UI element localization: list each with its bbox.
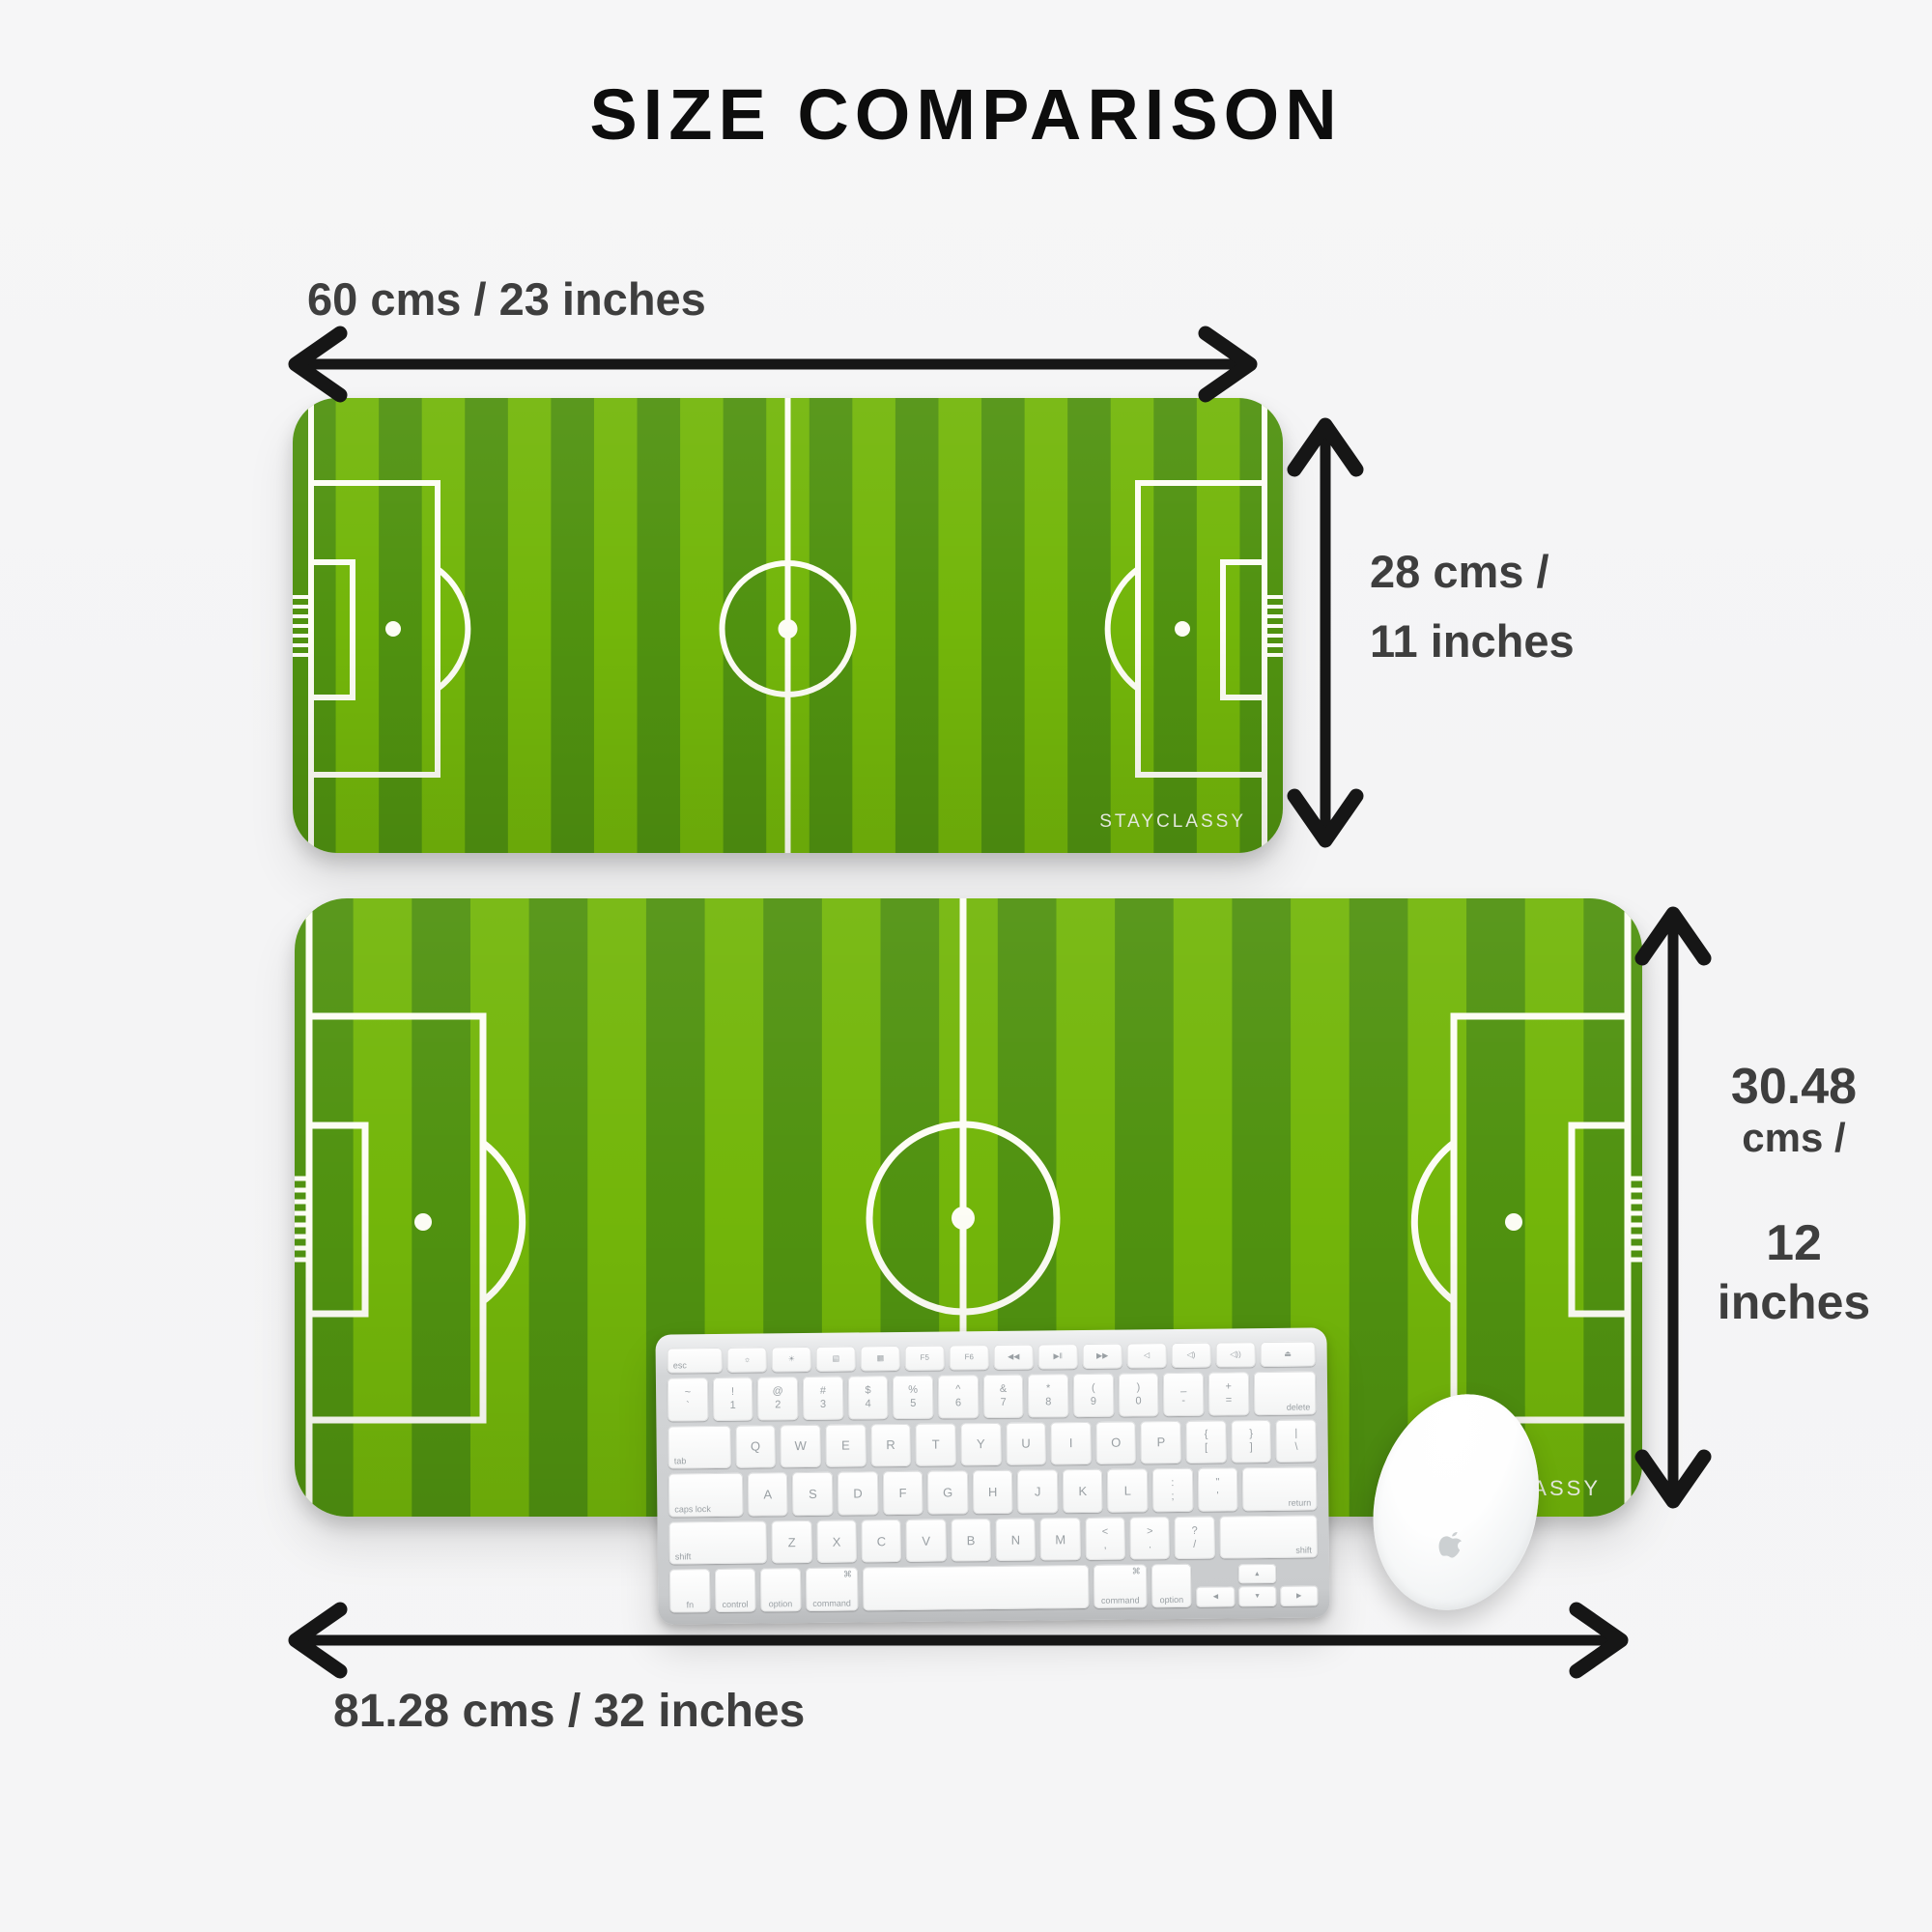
keyboard-key: F5 [905,1346,945,1371]
arrow-key: ◀ [1197,1586,1235,1607]
keyboard-key: P [1141,1421,1181,1464]
keyboard-key: U [1006,1422,1046,1465]
grass-stripe [379,398,422,853]
keyboard-key: (9 [1073,1374,1114,1417]
keyboard-key: )0 [1118,1373,1158,1416]
space-key [863,1565,1090,1610]
height-label-line: 28 cms / [1370,537,1575,607]
grass-stripe [336,398,380,853]
height-label-line: 11 inches [1370,607,1575,676]
small-mat-field: STAYCLASSY [293,398,1283,853]
penalty-spot-left [414,1213,432,1231]
grass-stripe [1067,398,1111,853]
keyboard-key: esc [668,1348,724,1374]
large-mat-width-label: 81.28 cms / 32 inches [333,1685,805,1738]
keyboard-key: N [995,1518,1036,1561]
keyboard-row: tabQWERTYUIOP{[}]|\ [668,1419,1316,1469]
keyboard-row: ~`!1@2#3$4%5^6&7*8(9)0_-+=delete [668,1371,1316,1421]
height-label-line: inches [1683,1275,1905,1329]
keyboard-key: ◁)) [1215,1342,1255,1367]
keyboard-key: delete [1253,1371,1316,1414]
keyboard-key: B [951,1519,991,1562]
keyboard-key: S [792,1472,833,1516]
small-mat-width-label: 60 cms / 23 inches [307,272,706,326]
grass-stripe [529,898,588,1517]
keyboard-key: J [1017,1469,1058,1513]
grass-stripe [680,398,724,853]
grass-stripe [852,398,895,853]
keyboard-keys: esc☼☀▤▦F5F6◀◀▶‖▶▶◁◁)◁))⏏~`!1@2#3$4%5^6&7… [668,1341,1319,1612]
grass-stripe [587,898,646,1517]
keyboard-key: ⌘command [806,1568,859,1611]
keyboard-row: caps lockASDFGHJKL:;"'return [668,1467,1317,1518]
keyboard-key: {[ [1186,1420,1227,1463]
keyboard-key: >. [1129,1517,1170,1560]
keyboard-key: ^6 [938,1375,979,1418]
small-mat-height-label: 28 cms / 11 inches [1370,537,1575,676]
grass-stripe [1111,398,1154,853]
size-comparison-graphic: SIZE COMPARISON 60 cms / 23 inches [0,0,1932,1932]
keyboard-key: :; [1152,1468,1193,1512]
keyboard-key: "' [1197,1468,1237,1512]
arrow-keys: ◀▲▼▶ [1196,1563,1318,1607]
keyboard-key: }] [1231,1420,1271,1463]
keyboard-key: tab [668,1425,730,1468]
keyboard-key: W [781,1424,821,1467]
grass-stripe [508,398,552,853]
keyboard-key: G [927,1470,968,1514]
keyboard-key: ▦ [861,1346,900,1371]
keyboard-key: control [715,1569,755,1612]
keyboard-key: F6 [950,1345,989,1370]
grass-stripe [938,398,981,853]
keyboard-key: @2 [757,1377,798,1420]
keyboard-key: F [883,1471,923,1515]
large-mat-height-label: 30.48 cms / 12 inches [1683,1059,1905,1329]
small-width-arrow [296,333,1250,395]
keyboard-key: ◁ [1126,1343,1166,1368]
keyboard-key: *8 [1028,1374,1068,1417]
goal-net-left [293,597,311,655]
keyboard-key: ▶▶ [1083,1344,1122,1369]
grass-stripe [1197,398,1240,853]
keyboard-key: !1 [713,1378,753,1421]
keyboard-key: return [1242,1467,1317,1511]
brand-text: STAYCLASSY [1099,811,1246,832]
grass-stripe [895,398,939,853]
keyboard-key: ▤ [816,1346,856,1371]
keyboard: esc☼☀▤▦F5F6◀◀▶‖▶▶◁◁)◁))⏏~`!1@2#3$4%5^6&7… [655,1327,1329,1624]
keyboard-key: Z [772,1520,812,1564]
keyboard-key: ☀ [772,1347,811,1372]
height-label-line: cms / [1683,1115,1905,1161]
keyboard-key: ⌘command [1094,1565,1147,1608]
keyboard-key: caps lock [668,1473,743,1517]
keyboard-key: ⏏ [1260,1341,1316,1367]
keyboard-key: ?/ [1175,1516,1215,1559]
penalty-spot-left [385,621,401,637]
keyboard-key: Y [960,1423,1001,1466]
keyboard-key: %5 [893,1376,933,1419]
goal-net-right [1264,597,1283,655]
keyboard-key: R [870,1423,911,1466]
grass-stripe [638,398,681,853]
grass-stripe [422,398,466,853]
keyboard-key: ▶‖ [1038,1344,1078,1369]
keyboard-key: K [1063,1469,1103,1513]
height-label-line: 12 [1683,1215,1905,1271]
keyboard-key: fn [669,1569,710,1612]
center-spot [952,1207,975,1230]
keyboard-key: _- [1163,1373,1204,1416]
grass-stripe [1525,898,1584,1517]
keyboard-key: ◀◀ [994,1345,1034,1370]
apple-logo-icon [1428,1520,1468,1563]
keyboard-key: M [1040,1518,1081,1561]
grass-stripe [1350,898,1408,1517]
grass-stripe [465,398,508,853]
keyboard-key: option [760,1568,801,1611]
keyboard-key: A [748,1472,788,1516]
keyboard-key: C [861,1520,901,1563]
page-title: SIZE COMPARISON [589,73,1342,156]
keyboard-key: $4 [848,1376,889,1419]
center-spot [779,619,798,639]
grass-stripe [810,398,853,853]
grass-stripe [1025,398,1068,853]
keyboard-key: ☼ [727,1347,767,1372]
keyboard-row: fncontroloption⌘command⌘commandoption◀▲▼… [669,1563,1318,1613]
keyboard-key: += [1208,1372,1249,1415]
keyboard-key: D [838,1471,878,1515]
keyboard-key: shift [668,1520,767,1565]
keyboard-key: V [906,1519,947,1562]
arrow-key: ▲ [1238,1564,1276,1584]
penalty-spot-right [1175,621,1190,637]
grass-stripe [1583,898,1642,1517]
keyboard-key: L [1107,1469,1148,1513]
grass-stripe [724,398,767,853]
arrow-key: ▼ [1238,1586,1276,1606]
keyboard-key: shift [1219,1515,1318,1559]
keyboard-key: ~` [668,1378,708,1421]
keyboard-key: |\ [1276,1419,1317,1463]
keyboard-key: &7 [982,1375,1023,1418]
grass-stripe [295,898,354,1517]
keyboard-row: esc☼☀▤▦F5F6◀◀▶‖▶▶◁◁)◁))⏏ [668,1341,1316,1373]
keyboard-key: ◁) [1171,1343,1210,1368]
grass-stripe [412,898,470,1517]
keyboard-key: O [1095,1421,1136,1464]
keyboard-key: E [825,1424,866,1467]
grass-stripe [551,398,594,853]
small-height-arrow [1294,425,1356,840]
keyboard-key: I [1051,1422,1092,1465]
keyboard-key: H [973,1470,1013,1514]
small-mat: STAYCLASSY [293,398,1283,853]
keyboard-key: Q [735,1425,776,1468]
keyboard-key: <, [1085,1517,1125,1560]
grass-stripe [594,398,638,853]
arrow-key: ▶ [1280,1585,1318,1606]
keyboard-key: #3 [803,1377,843,1420]
grass-stripe [981,398,1025,853]
keyboard-row: shiftZXCVBNM<,>.?/shift [668,1515,1317,1565]
keyboard-key: option [1151,1564,1192,1607]
height-label-line: 30.48 [1683,1059,1905,1115]
penalty-spot-right [1505,1213,1522,1231]
keyboard-key: T [916,1423,956,1466]
keyboard-key: X [816,1520,857,1563]
